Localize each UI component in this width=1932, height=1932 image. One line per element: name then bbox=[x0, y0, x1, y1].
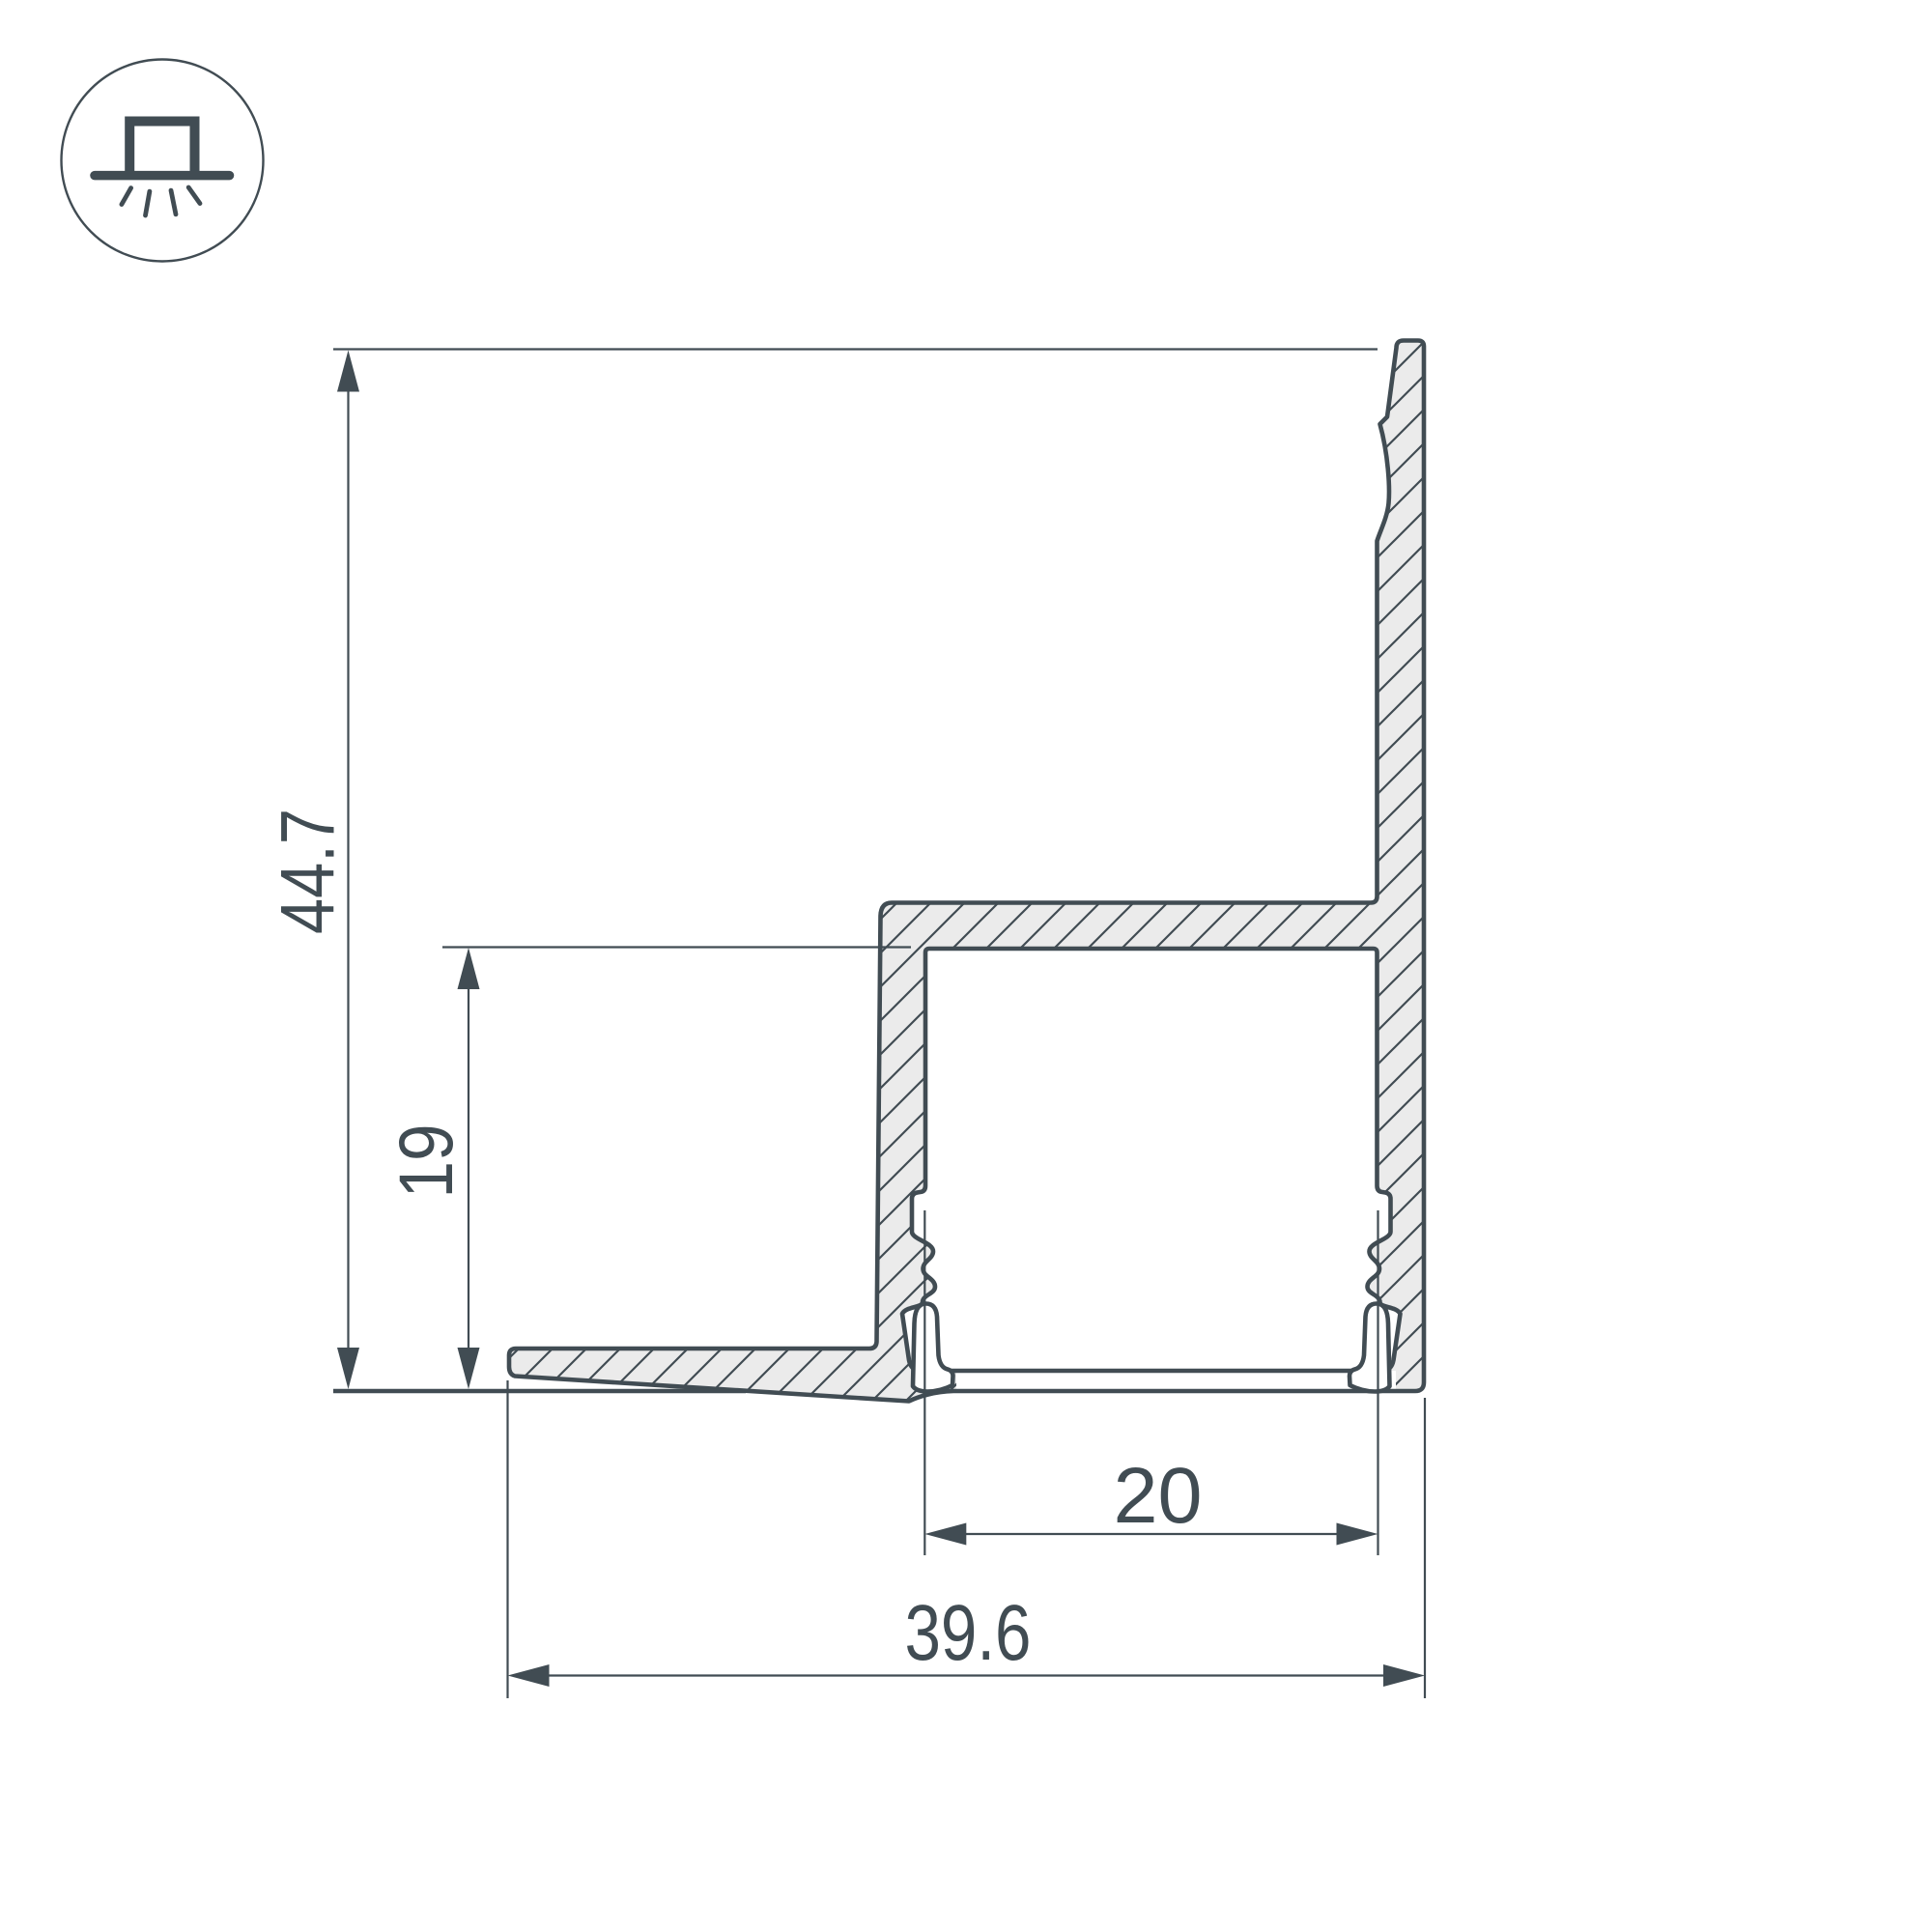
svg-text:20: 20 bbox=[1114, 1452, 1203, 1540]
svg-text:44.7: 44.7 bbox=[265, 809, 351, 934]
svg-text:19: 19 bbox=[383, 1124, 469, 1199]
svg-text:39.6: 39.6 bbox=[905, 1589, 1032, 1677]
